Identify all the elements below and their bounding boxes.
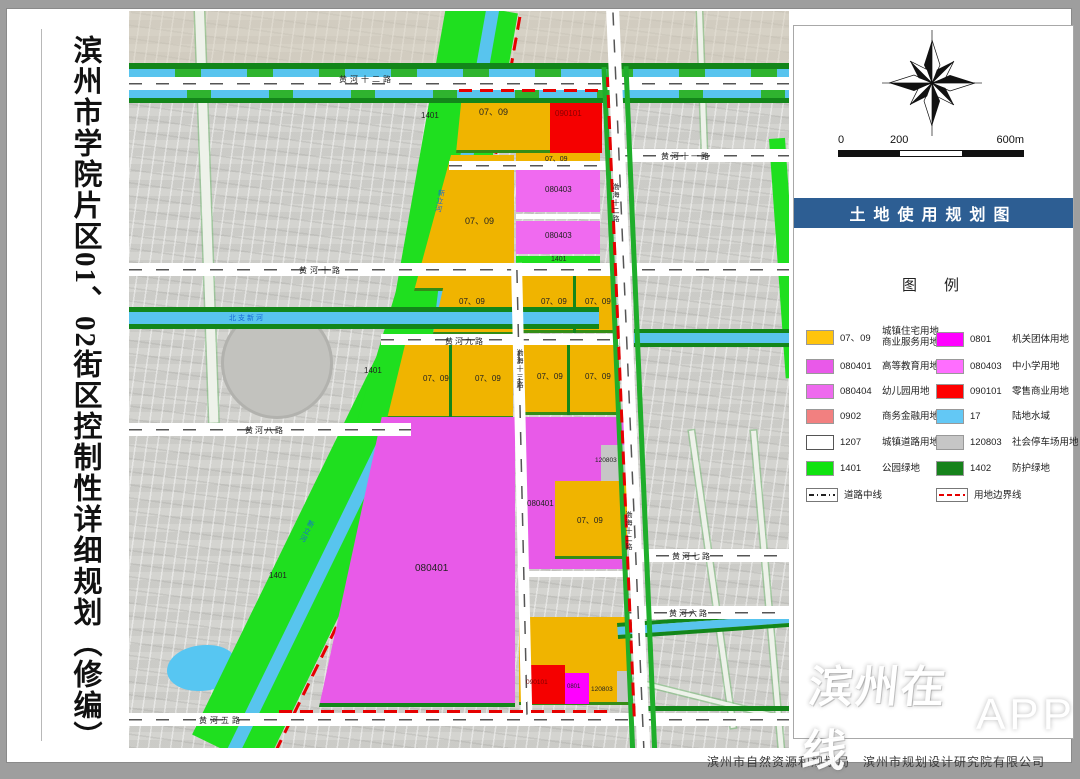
footer-org-1: 滨州市自然资源和规划局 (707, 753, 850, 770)
scale-tick: 0 (838, 134, 844, 146)
legend-swatch (806, 435, 834, 450)
water-strip (129, 69, 789, 77)
river-water (129, 312, 599, 324)
parcel-label: 1401 (551, 256, 567, 263)
legend-swatch (936, 384, 964, 399)
scale-tick: 200 (890, 134, 908, 146)
road-label: 黄河十二路 (339, 74, 394, 85)
green-belt (129, 98, 789, 103)
legend-item: 1401 公园绿地 (806, 461, 920, 476)
boundary-symbol (936, 488, 968, 502)
legend-swatch (806, 384, 834, 399)
legend-item: 1207 城镇道路用地 (806, 435, 939, 450)
legend-code: 1402 (970, 463, 1012, 474)
legend-swatch (806, 461, 834, 476)
legend-swatch (936, 359, 964, 374)
legend-panel: 0 200 600m 土地使用规划图 图 例 07、09 城镇住宅用地商业服务用… (793, 25, 1074, 739)
road-label: 黄河十路 (299, 265, 343, 276)
scale-tick: 600m (996, 134, 1024, 146)
parcel-label: 07、09 (577, 515, 603, 526)
street (751, 431, 784, 748)
road-huanghe-10 (129, 263, 789, 276)
legend-name: 防护绿地 (1012, 463, 1050, 474)
legend-name: 陆地水域 (1012, 411, 1050, 422)
street (689, 430, 736, 728)
road-label: 渤海十三路 (514, 349, 524, 389)
legend-name: 高等教育用地 (882, 361, 939, 372)
legend-code: 120803 (970, 437, 1012, 448)
legend-name: 公园绿地 (882, 463, 920, 474)
road-label: 黄河八路 (245, 425, 285, 436)
parcel-divider (449, 341, 452, 419)
road-label: 黄河六路 (669, 608, 709, 619)
park-label: 1401 (364, 366, 382, 375)
scale-bar: 0 200 600m (838, 134, 1024, 157)
legend-code: 0902 (840, 411, 882, 422)
legend-item: 080401 高等教育用地 (806, 359, 939, 374)
legend-swatch (806, 359, 834, 374)
legend-name: 商务金融用地 (882, 411, 939, 422)
road-label: 黄河十一路 (661, 151, 711, 162)
road-label: 黄河九路 (445, 336, 485, 347)
map-title-banner: 土地使用规划图 (794, 198, 1073, 228)
legend-title: 图 例 (794, 274, 1073, 295)
parcel-divider (567, 341, 570, 415)
parcel-label: 07、09 (585, 371, 611, 382)
parcel-label: 090101 (555, 109, 582, 118)
compass-rose-icon (877, 28, 987, 138)
legend-code: 0801 (970, 334, 1012, 345)
legend-line-item: 道路中线 (806, 488, 882, 502)
parcel-label: 07、09 (475, 373, 501, 384)
legend-item: 080403 中小学用地 (936, 359, 1060, 374)
legend-code: 07、09 (840, 330, 882, 344)
legend-name: 幼儿园用地 (882, 386, 930, 397)
parcel-label: 080403 (545, 185, 572, 194)
legend-name: 城镇住宅用地商业服务用地 (882, 326, 939, 348)
park-label: 1401 (421, 111, 439, 120)
green-belt (129, 324, 599, 329)
page-title: 滨州市学院片区01、02街区控制性详细规划（修编） (49, 35, 121, 741)
parcel-label: 120803 (591, 686, 613, 693)
green-belt (634, 706, 789, 711)
parcel-label: 0801 (567, 684, 580, 690)
legend-item: 07、09 城镇住宅用地商业服务用地 (806, 326, 939, 348)
parcel-label: 07、09 (545, 154, 568, 164)
parcel-label: 080401 (527, 499, 554, 508)
park-label: 1401 (269, 571, 287, 580)
legend-name: 零售商业用地 (1012, 386, 1069, 397)
legend-swatch (936, 461, 964, 476)
boundary-dash (279, 710, 609, 713)
legend-name: 道路中线 (844, 490, 882, 501)
road-huanghe-9 (381, 334, 619, 345)
scale-bar-segments (838, 150, 1024, 157)
scale-labels: 0 200 600m (838, 134, 1024, 148)
river-water (634, 333, 789, 343)
centerline-symbol (806, 488, 838, 502)
legend-swatch (936, 332, 964, 347)
land-use-map: 黄河十二路 黄河十一路 黄河十路 黄河九路 黄河八路 黄河七路 黄河六路 黄河五… (129, 11, 789, 748)
legend-name: 社会停车场用地 (1012, 437, 1079, 448)
road-label: 黄河五路 (199, 715, 243, 726)
legend-item: 080404 幼儿园用地 (806, 384, 930, 399)
legend-code: 1401 (840, 463, 882, 474)
title-divider (41, 29, 42, 741)
parcel-label: 07、09 (465, 214, 494, 227)
parcel-label: 07、09 (537, 371, 563, 382)
legend-item: 17 陆地水域 (936, 409, 1050, 424)
legend-code: 080404 (840, 386, 882, 397)
river-label: 北支新河 (229, 313, 265, 323)
map-title: 土地使用规划图 (849, 201, 1017, 225)
legend-swatch (806, 409, 834, 424)
legend-swatch (936, 435, 964, 450)
parcel-label: 090101 (526, 679, 548, 686)
parcel-label: 07、09 (541, 296, 567, 307)
legend-code: 080403 (970, 361, 1012, 372)
parcel-label: 120803 (595, 457, 617, 464)
parcel-label: 07、09 (459, 296, 485, 307)
parcel-label: 07、09 (423, 373, 449, 384)
minor-road (519, 571, 629, 577)
minor-road (449, 161, 606, 170)
legend-name: 用地边界线 (974, 490, 1022, 501)
legend-name: 城镇道路用地 (882, 437, 939, 448)
legend-item: 1402 防护绿地 (936, 461, 1050, 476)
road-label: 渤海十二路 (623, 511, 633, 551)
plan-sheet: 滨州市学院片区01、02街区控制性详细规划（修编） (6, 8, 1072, 763)
parcel-label: 07、09 (585, 296, 611, 307)
legend-code: 1207 (840, 437, 882, 448)
planning-map-page: { "title": { "text": "滨州市学院片区01、02街区控制性详… (0, 0, 1080, 771)
legend-code: 080401 (840, 361, 882, 372)
parcel-label: 080401 (415, 563, 448, 574)
legend-name: 中小学用地 (1012, 361, 1060, 372)
parcel-label: 07、09 (479, 105, 508, 118)
boundary-dash (459, 89, 606, 92)
legend-name: 机关团体用地 (1012, 334, 1069, 345)
green-belt (634, 343, 789, 347)
legend-line-item: 用地边界线 (936, 488, 1022, 502)
road-label: 渤海十二路 (610, 183, 620, 223)
parcel-label: 080403 (545, 231, 572, 240)
legend-item: 0801 机关团体用地 (936, 332, 1069, 347)
minor-road (516, 214, 600, 219)
legend-item: 090101 零售商业用地 (936, 384, 1069, 399)
legend-code: 090101 (970, 386, 1012, 397)
footer-org-2: 滨州市规划设计研究院有限公司 (863, 753, 1045, 770)
legend-swatch (936, 409, 964, 424)
legend-item: 120803 社会停车场用地 (936, 435, 1079, 450)
legend-item: 0902 商务金融用地 (806, 409, 939, 424)
legend-code: 17 (970, 411, 1012, 422)
legend-swatch (806, 330, 834, 345)
road-label: 黄河七路 (672, 551, 712, 562)
